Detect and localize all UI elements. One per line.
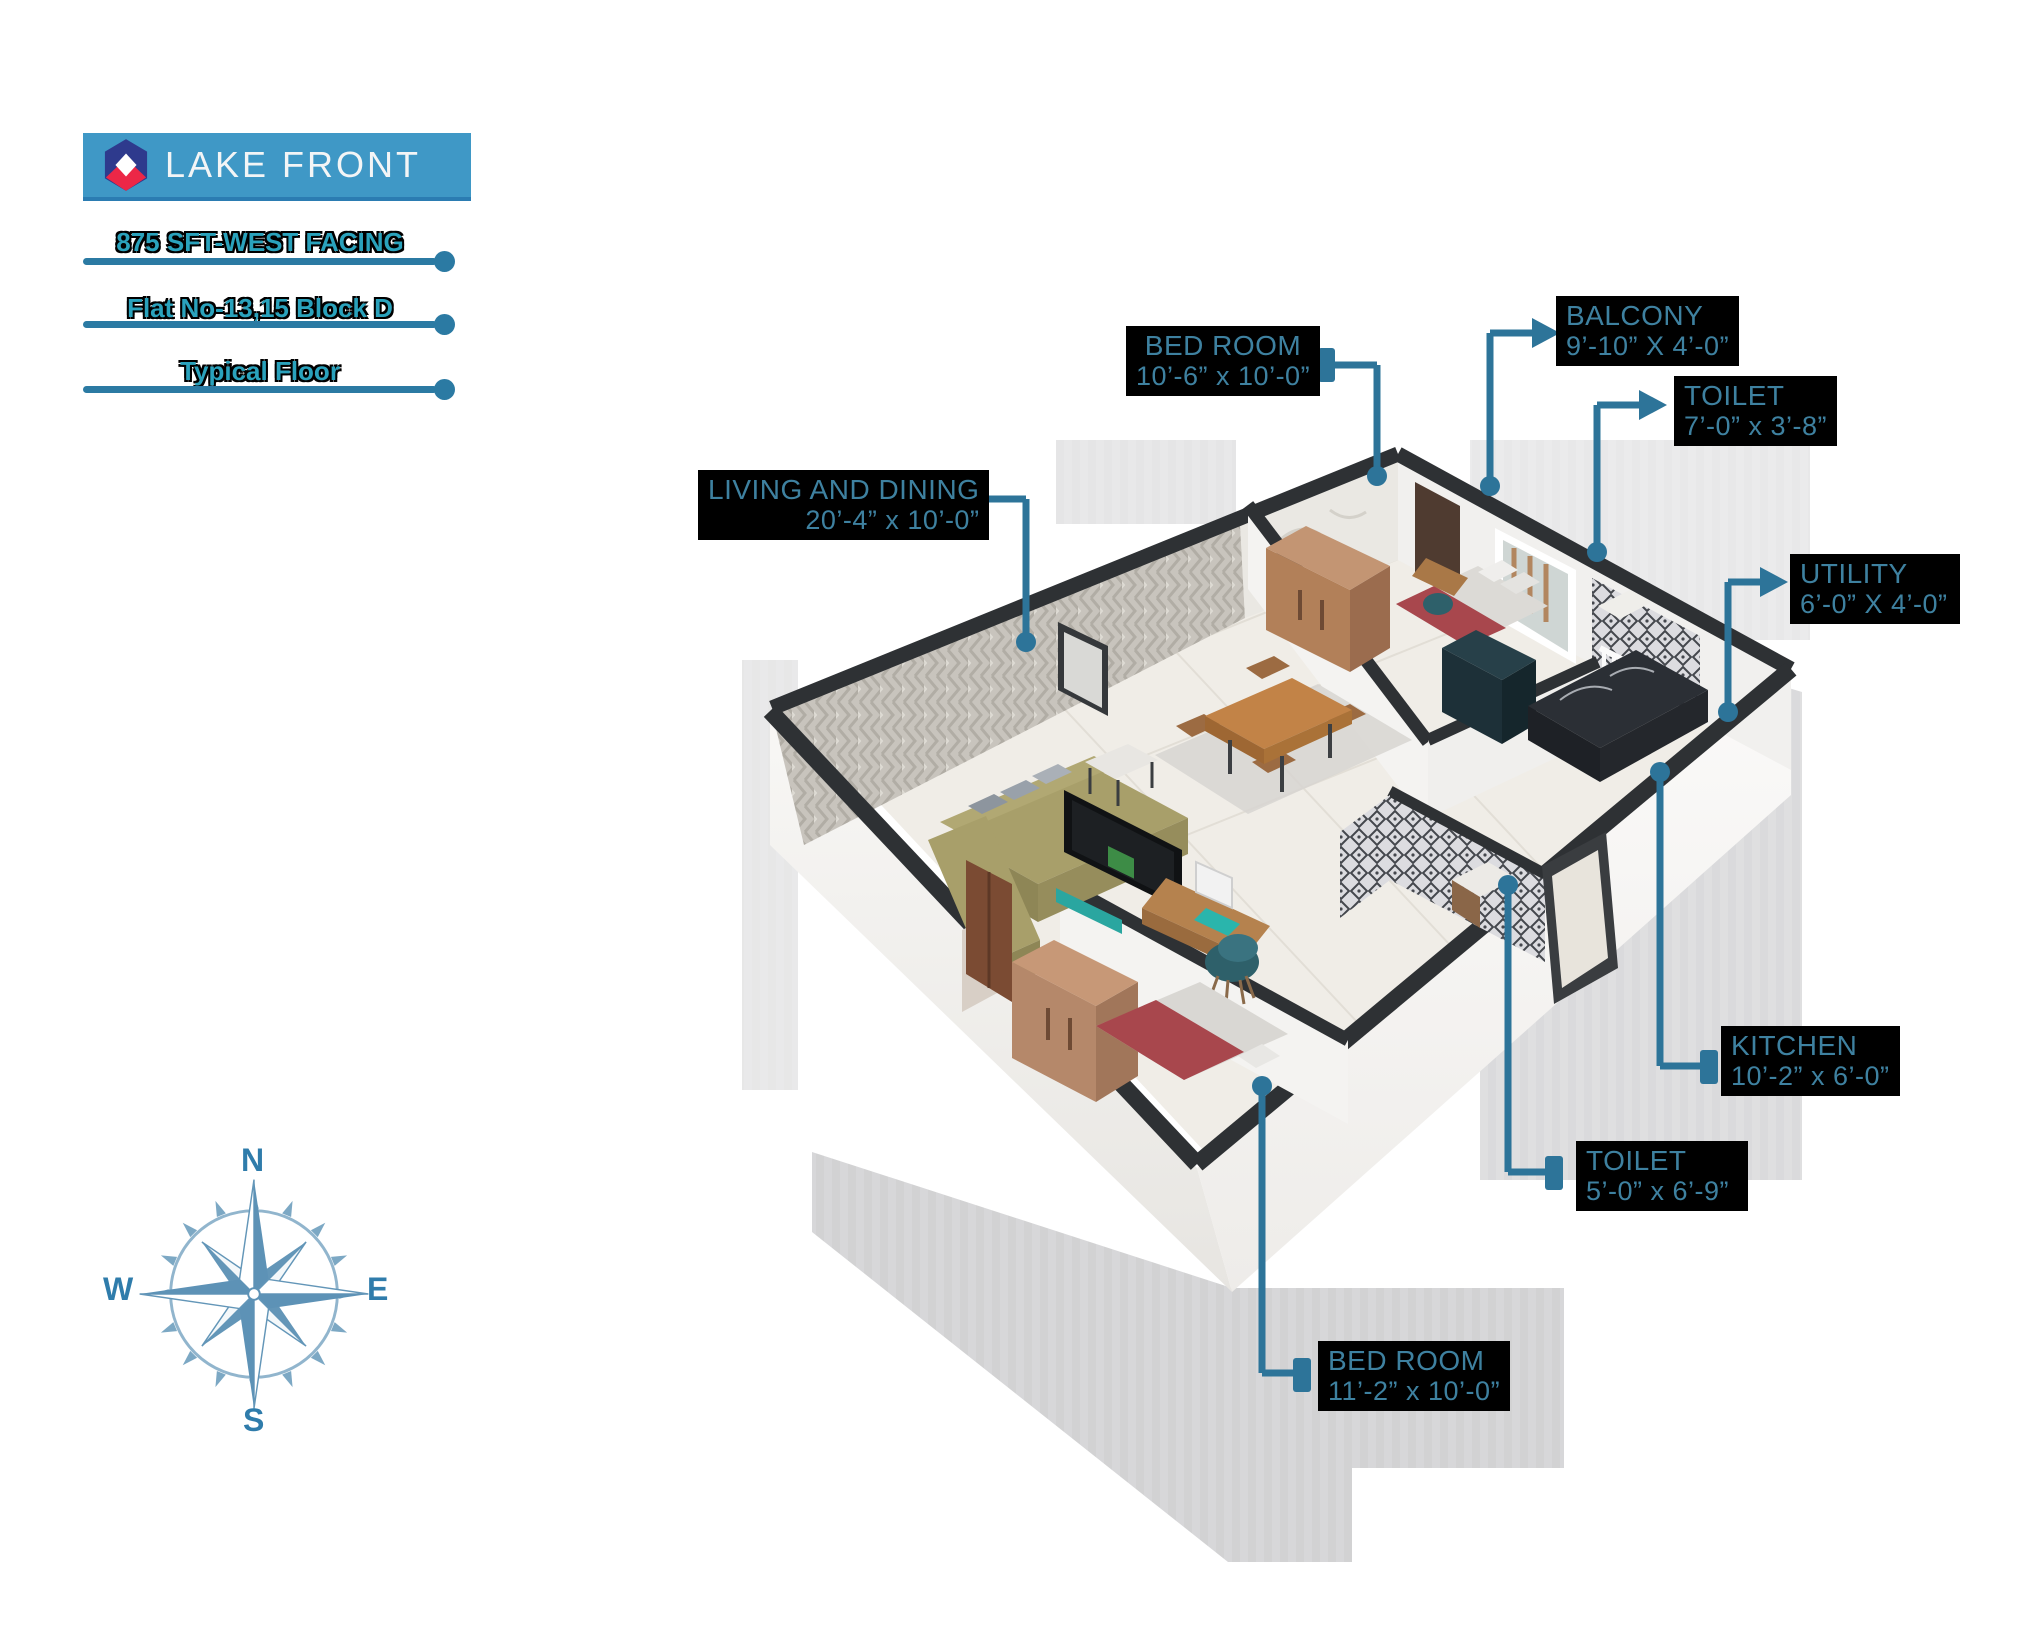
- room-dims: 7’-0” x 3’-8”: [1684, 411, 1827, 442]
- room-dims: 11’-2” x 10’-0”: [1328, 1376, 1500, 1407]
- compass-north-label: N: [241, 1142, 264, 1179]
- label-kitchen: KITCHEN 10’-2” x 6’-0”: [1721, 1026, 1900, 1096]
- room-dims: 20’-4” x 10’-0”: [708, 505, 979, 536]
- room-dims: 5’-0” x 6’-9”: [1586, 1176, 1738, 1207]
- room-name: BALCONY: [1566, 300, 1729, 331]
- room-dims: 10’-2” x 6’-0”: [1731, 1061, 1890, 1092]
- room-name: UTILITY: [1800, 558, 1950, 589]
- header-flat-no: Flat No-13,15 Block D: [83, 293, 437, 324]
- room-dims: 9’-10” X 4’-0”: [1566, 331, 1729, 362]
- compass-rose-icon: [128, 1168, 380, 1420]
- compass-east-label: E: [367, 1271, 388, 1308]
- room-name: BED ROOM: [1328, 1345, 1500, 1376]
- room-name: BED ROOM: [1136, 330, 1310, 361]
- room-dims: 10’-6” x 10’-0”: [1136, 361, 1310, 392]
- header-rule: [83, 258, 437, 265]
- label-bedroom-bottom: BED ROOM 11’-2” x 10’-0”: [1318, 1341, 1510, 1411]
- room-name: TOILET: [1684, 380, 1827, 411]
- room-name: LIVING AND DINING: [708, 474, 979, 505]
- label-utility: UTILITY 6’-0” X 4’-0”: [1790, 554, 1960, 624]
- room-dims: 6’-0” X 4’-0”: [1800, 589, 1950, 620]
- header-rule: [83, 386, 437, 393]
- header-floor-type: Typical Floor: [83, 356, 437, 387]
- compass-south-label: S: [243, 1402, 264, 1439]
- label-living-dining: LIVING AND DINING 20’-4” x 10’-0”: [698, 470, 989, 540]
- header-area-facing: 875 SFT-WEST FACING: [83, 227, 437, 258]
- header-rule: [83, 321, 437, 328]
- page-title: LAKE FRONT: [165, 144, 421, 186]
- label-toilet-bottom: TOILET 5’-0” x 6’-9”: [1576, 1141, 1748, 1211]
- lake-front-logo-icon: [103, 138, 149, 192]
- brand-banner: LAKE FRONT: [83, 133, 471, 201]
- room-name: TOILET: [1586, 1145, 1738, 1176]
- compass-west-label: W: [103, 1271, 133, 1308]
- room-name: KITCHEN: [1731, 1030, 1890, 1061]
- label-toilet-top: TOILET 7’-0” x 3’-8”: [1674, 376, 1837, 446]
- label-balcony: BALCONY 9’-10” X 4’-0”: [1556, 296, 1739, 366]
- label-bedroom-top: BED ROOM 10’-6” x 10’-0”: [1126, 326, 1320, 396]
